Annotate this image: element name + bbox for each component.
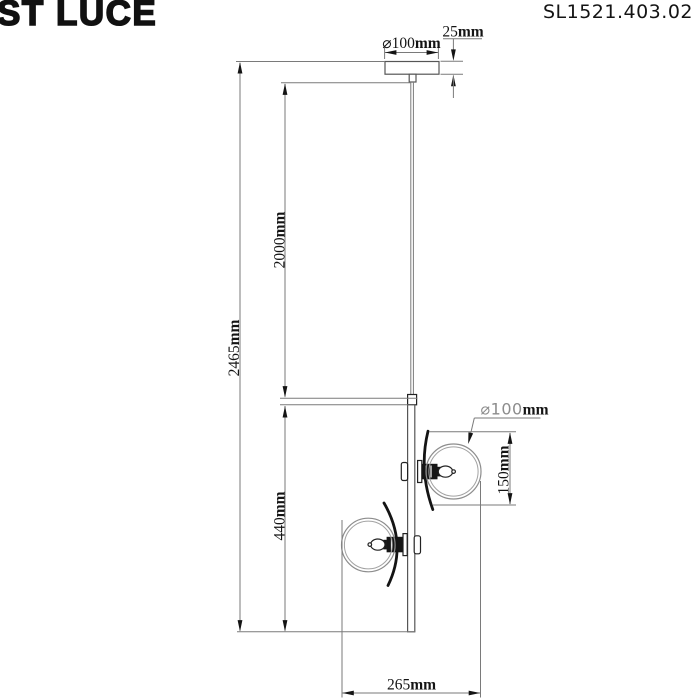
dimension-arrow — [238, 62, 243, 74]
lower-bulb-tip — [368, 543, 372, 547]
dimension-arrow — [283, 386, 288, 398]
canopy-diameter-label: ⌀100mm — [382, 35, 441, 52]
dimension-arrow — [469, 691, 481, 696]
dimension-canopy-height: 25mm — [441, 24, 484, 99]
body-height-label: 440mm — [272, 491, 289, 540]
dimension-arrow — [342, 691, 354, 696]
stem-bar — [408, 405, 415, 632]
lower-mount-plate — [414, 536, 420, 554]
suspension-cable — [411, 82, 414, 395]
dimension-cable-length: 2000mm — [272, 83, 411, 398]
shade-height-label: 150mm — [496, 445, 513, 494]
lower-bulb — [371, 539, 385, 550]
overall-width-label: 265mm — [387, 677, 436, 694]
canopy-body — [385, 62, 439, 75]
upper-bracket — [418, 461, 422, 483]
dimension-shade-diameter: ⌀100mm — [466, 400, 549, 445]
dimension-arrow — [283, 620, 288, 632]
lower-bracket — [403, 534, 407, 556]
technical-drawing-page: ST LUCE SL1521.403.02 — [0, 0, 695, 700]
upper-bulb-tip — [452, 470, 456, 474]
ceiling-canopy — [385, 62, 439, 83]
dimension-arrow — [238, 620, 243, 632]
dimension-canopy-diameter: ⌀100mm — [382, 35, 441, 59]
dimension-arrow — [451, 49, 456, 61]
canopy-height-label: 25mm — [442, 24, 483, 41]
dimension-total-height: 2465mm — [226, 62, 385, 632]
stem — [408, 395, 417, 632]
canopy-connector — [409, 74, 416, 82]
dimension-arrow — [283, 406, 288, 418]
upper-bulb — [438, 466, 452, 477]
stem-top-connector — [408, 395, 417, 405]
cable-length-label: 2000mm — [272, 212, 289, 269]
shade-diameter-label: ⌀100mm — [481, 400, 549, 419]
pendant-lamp-drawing: 2465mm 2000mm 440mm ⌀100mm — [0, 0, 695, 700]
dimension-arrow — [283, 83, 288, 95]
total-height-label: 2465mm — [226, 320, 243, 377]
upper-mount-plate — [401, 463, 407, 481]
dimension-arrow — [508, 432, 513, 444]
leader-arrow — [466, 432, 473, 444]
